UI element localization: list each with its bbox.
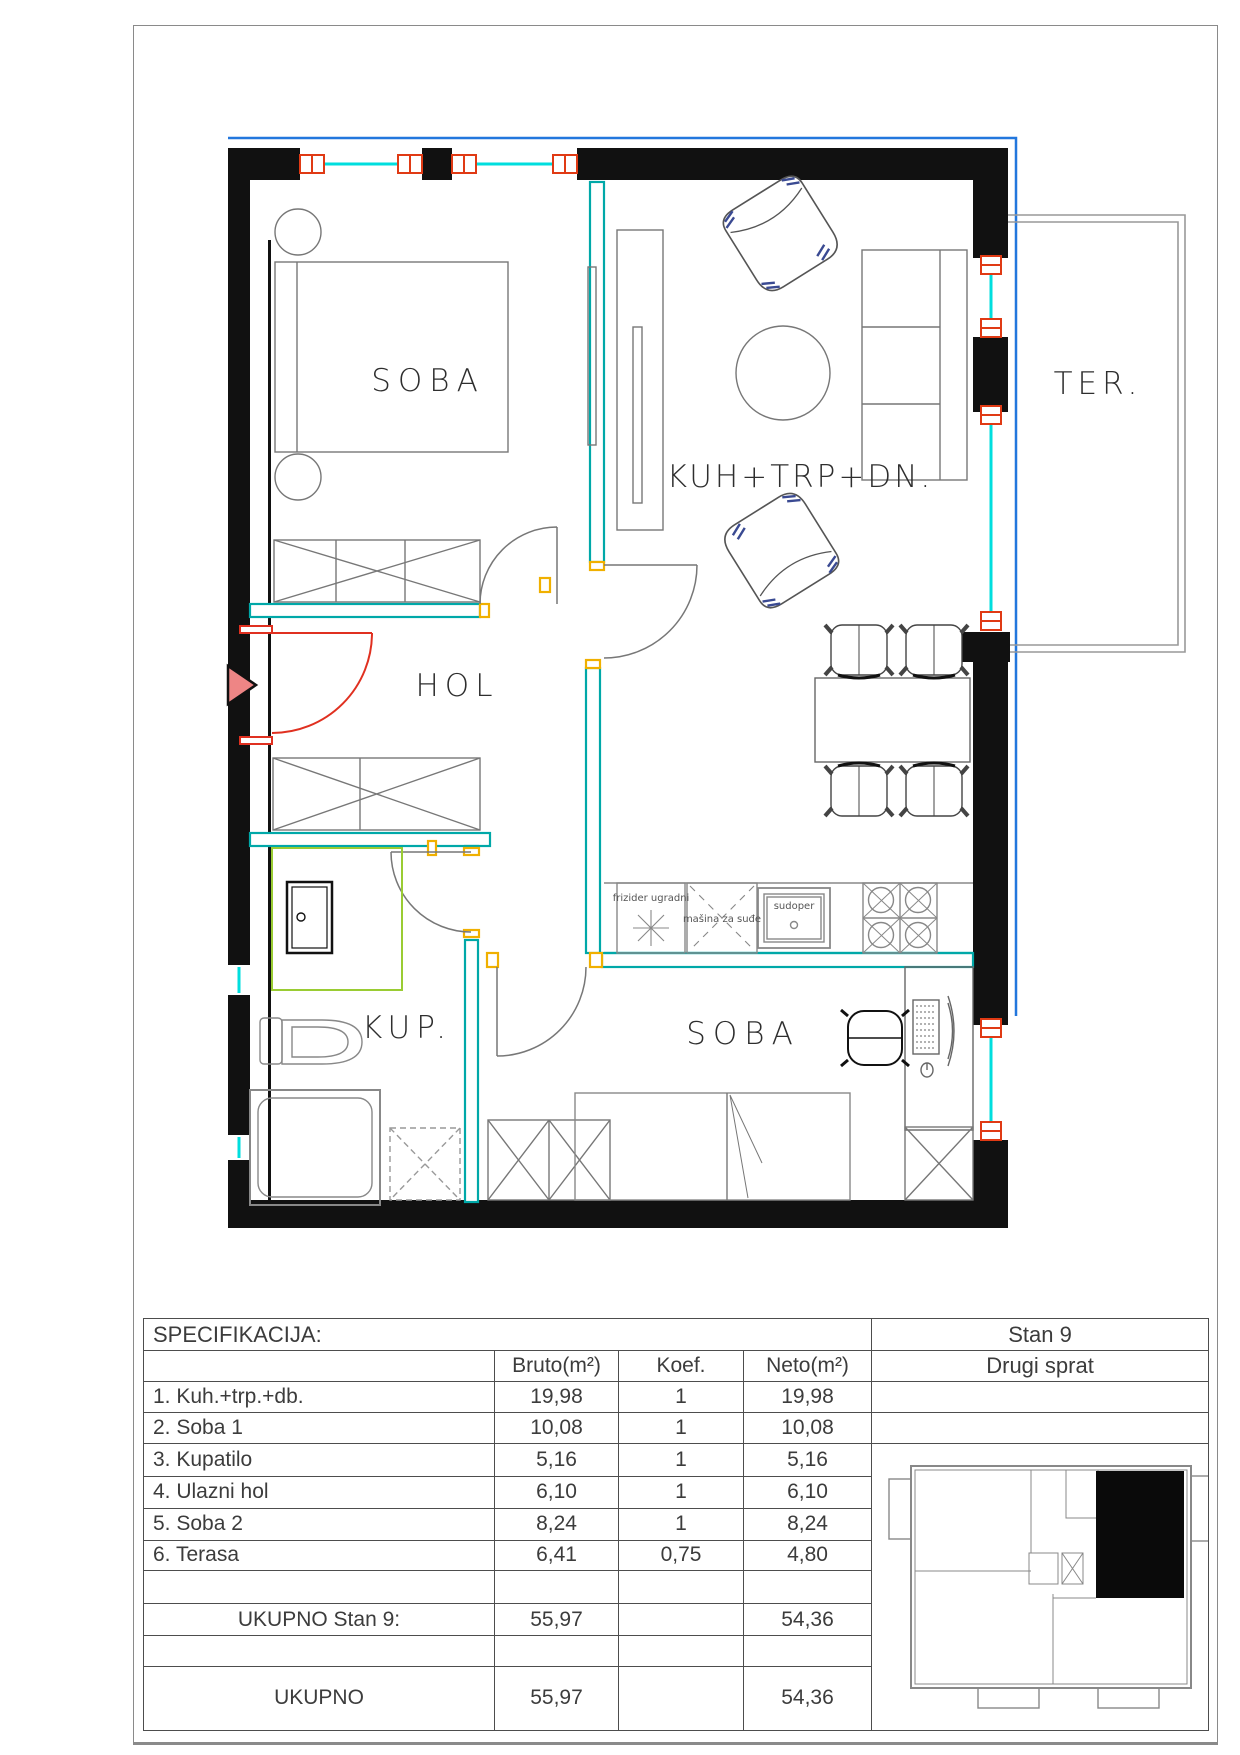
table-row: 1. Kuh.+trp.+db. 19,98 1 19,98	[144, 1382, 1209, 1413]
page-bottom-rule	[133, 1742, 1218, 1745]
row-name: 4. Ulazni hol	[144, 1476, 495, 1509]
sink-icon	[758, 888, 830, 948]
wardrobe-soba2-icon	[488, 1120, 610, 1200]
row-name: 5. Soba 2	[144, 1509, 495, 1541]
spec-header-bruto: Bruto(m²)	[495, 1351, 619, 1382]
facade-line	[228, 138, 1016, 1016]
label-dishwasher: mašina za suđe	[683, 913, 761, 925]
row-name: 6. Terasa	[144, 1540, 495, 1571]
total-name: UKUPNO Stan 9:	[144, 1603, 495, 1636]
room-label-soba2: SOBA	[686, 1016, 800, 1052]
row-koef: 1	[619, 1444, 744, 1477]
table-row: 3. Kupatilo 5,16 1 5,16	[144, 1444, 1209, 1477]
row-koef: 1	[619, 1476, 744, 1509]
label-fridge: frizider ugradni	[613, 893, 690, 904]
row-bruto: 6,41	[495, 1540, 619, 1571]
tv-cabinet-icon	[617, 230, 663, 530]
bed-2-icon	[575, 1093, 850, 1200]
key-plan	[878, 1444, 1209, 1724]
stove-icon	[863, 883, 937, 953]
total-name: UKUPNO	[144, 1666, 495, 1730]
exterior-walls	[228, 148, 1010, 1228]
label-sink: sudoper	[774, 901, 816, 912]
row-koef: 1	[619, 1382, 744, 1413]
key-plan-cell	[872, 1444, 1209, 1731]
wardrobe-soba1-icon	[274, 540, 480, 602]
highlighted-unit	[1096, 1471, 1184, 1598]
interior-partitions	[250, 182, 973, 1202]
row-bruto: 8,24	[495, 1509, 619, 1541]
right-cell	[872, 1413, 1209, 1444]
table-row: 2. Soba 1 10,08 1 10,08	[144, 1413, 1209, 1444]
room-label-terrace: TER.	[1054, 366, 1143, 402]
terrace-outline	[1008, 215, 1185, 652]
row-name: 2. Soba 1	[144, 1413, 495, 1444]
door-jambs	[428, 562, 604, 967]
total-neto: 54,36	[744, 1666, 872, 1730]
row-bruto: 5,16	[495, 1444, 619, 1477]
washing-machine-icon	[287, 882, 332, 953]
office-chair-icon	[841, 1010, 909, 1066]
spec-header-empty	[144, 1351, 495, 1382]
round-table-icon	[736, 326, 830, 420]
spec-header-neto: Neto(m²)	[744, 1351, 872, 1382]
row-neto: 8,24	[744, 1509, 872, 1541]
total-bruto: 55,97	[495, 1603, 619, 1636]
total-bruto: 55,97	[495, 1666, 619, 1730]
row-bruto: 6,10	[495, 1476, 619, 1509]
drawing-sheet: SOBA KUH+TRP+DN. HOL KUP. SOBA TER. friz…	[0, 0, 1240, 1755]
spec-title: SPECIFIKACIJA:	[144, 1319, 872, 1351]
row-bruto: 19,98	[495, 1382, 619, 1413]
row-koef: 1	[619, 1413, 744, 1444]
armchair-icon	[718, 171, 843, 297]
wardrobe-hol-icon	[273, 758, 480, 830]
wardrobe-desk-icon	[905, 1127, 973, 1200]
row-name: 1. Kuh.+trp.+db.	[144, 1382, 495, 1413]
bed-1-icon	[275, 209, 508, 500]
dining-set-icon	[815, 625, 970, 816]
right-cell	[872, 1382, 1209, 1413]
row-neto: 4,80	[744, 1540, 872, 1571]
shower-square-icon	[390, 1128, 460, 1200]
room-label-living: KUH+TRP+DN.	[667, 459, 934, 495]
row-neto: 19,98	[744, 1382, 872, 1413]
unit-label: Stan 9	[872, 1319, 1209, 1351]
room-label-hol: HOL	[416, 668, 499, 704]
floor-label: Drugi sprat	[872, 1351, 1209, 1382]
row-name: 3. Kupatilo	[144, 1444, 495, 1477]
armchair-icon	[718, 487, 843, 613]
row-neto: 6,10	[744, 1476, 872, 1509]
row-koef: 1	[619, 1509, 744, 1541]
monitor-icon	[948, 996, 954, 1066]
row-koef: 0,75	[619, 1540, 744, 1571]
spec-header-koef: Koef.	[619, 1351, 744, 1382]
row-neto: 5,16	[744, 1444, 872, 1477]
specification-table: SPECIFIKACIJA: Stan 9 Bruto(m²) Koef. Ne…	[143, 1318, 1209, 1731]
furniture	[250, 171, 973, 1205]
row-neto: 10,08	[744, 1413, 872, 1444]
row-bruto: 10,08	[495, 1413, 619, 1444]
room-label-soba1: SOBA	[371, 363, 485, 399]
keyboard-icon	[913, 1000, 939, 1054]
toilet-icon	[260, 1018, 362, 1064]
room-label-kup: KUP.	[362, 1010, 452, 1046]
desk-icon	[905, 967, 973, 1130]
floor-plan: SOBA KUH+TRP+DN. HOL KUP. SOBA TER. friz…	[0, 0, 1240, 1320]
sofa-icon	[862, 250, 967, 480]
total-neto: 54,36	[744, 1603, 872, 1636]
